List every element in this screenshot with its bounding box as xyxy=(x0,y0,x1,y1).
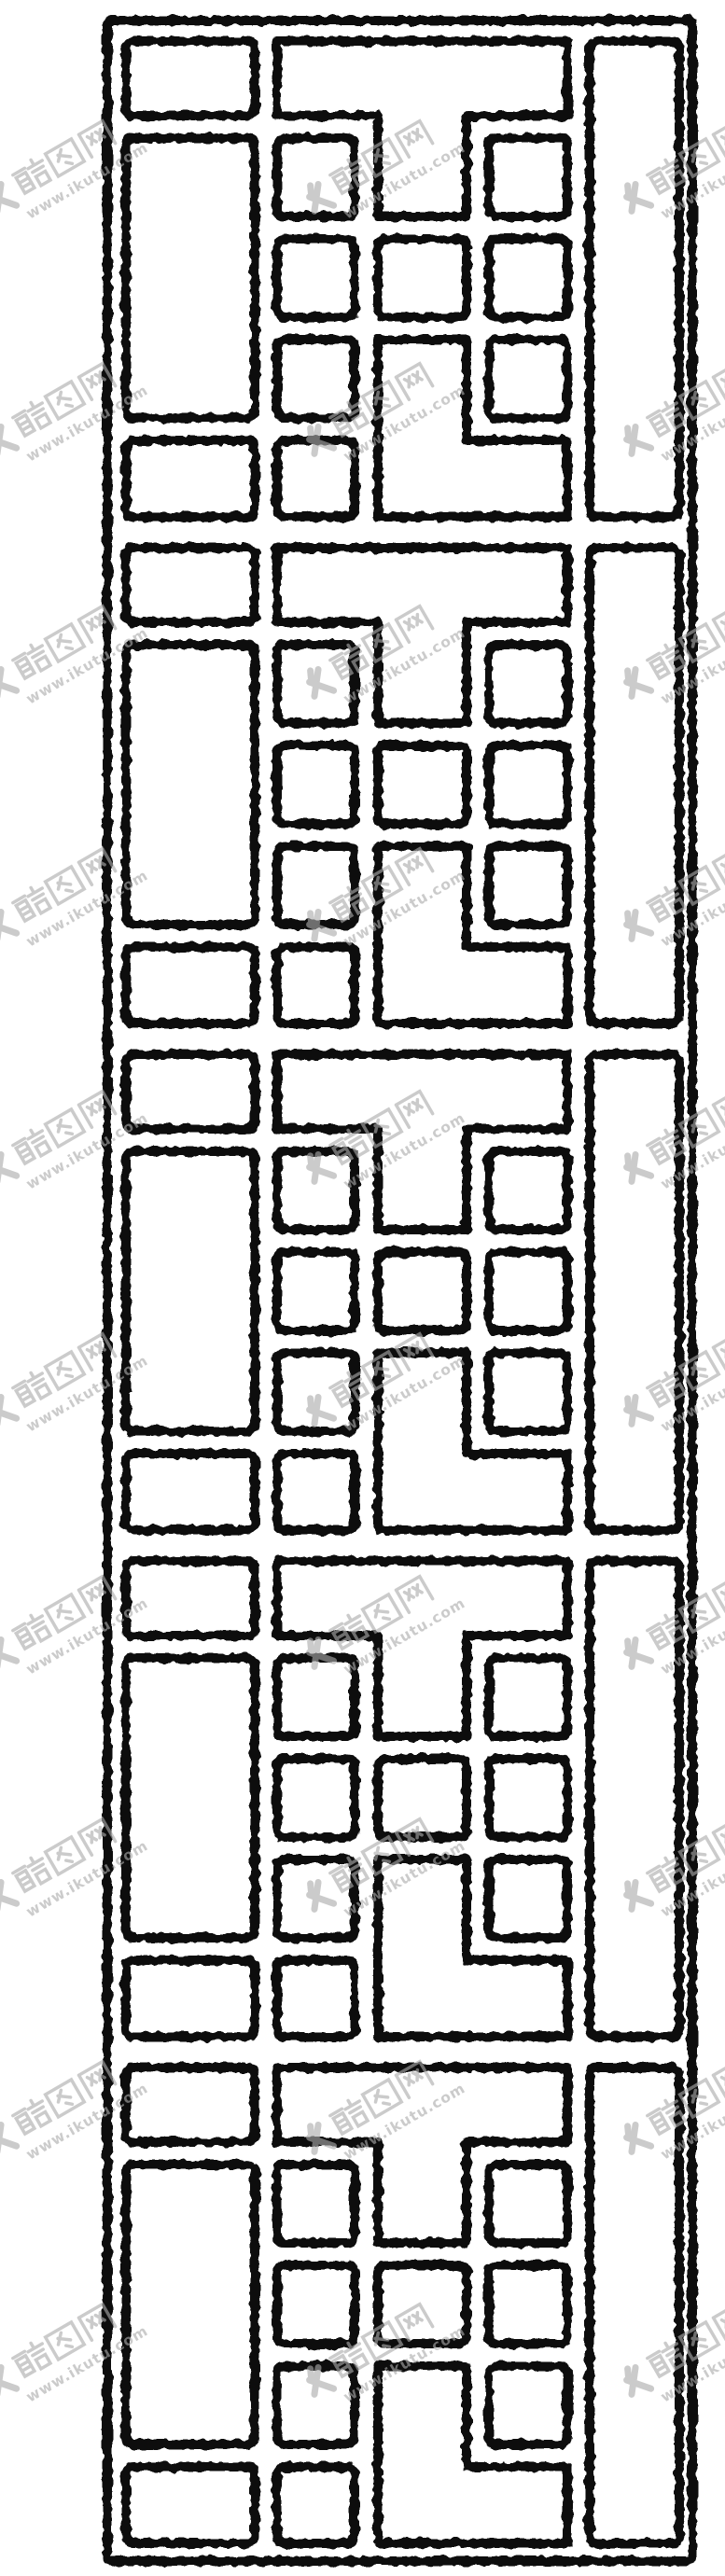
scanned-lattice-pattern-image: www.ikutu.comwww.ikutu.comwww.ikutu.comw… xyxy=(0,0,725,2576)
lattice-panel-svg: www.ikutu.comwww.ikutu.comwww.ikutu.comw… xyxy=(0,0,725,2576)
